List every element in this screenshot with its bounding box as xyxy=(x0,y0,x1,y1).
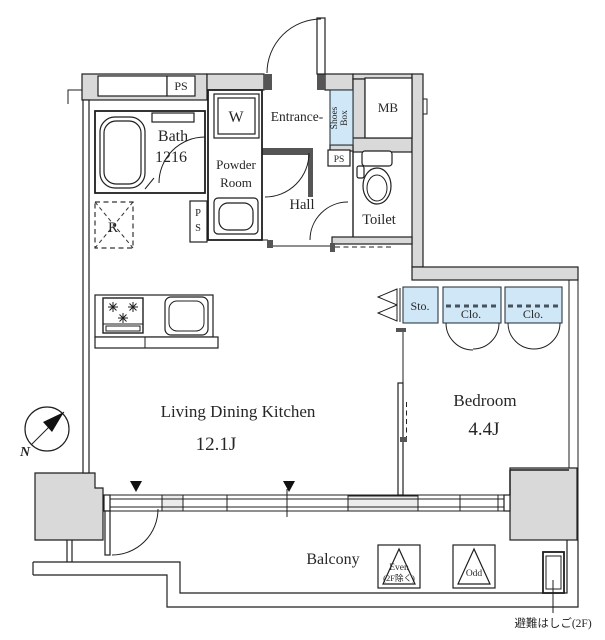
entrance-inner-door-arc xyxy=(265,153,309,197)
label-powder-2: Room xyxy=(220,175,252,190)
label-washer: W xyxy=(228,109,244,126)
door-jamb-right xyxy=(317,74,325,90)
exterior-stub-top-left xyxy=(68,90,82,104)
wall-toilet-bottom xyxy=(332,237,412,244)
label-bath-size: 1216 xyxy=(155,149,187,166)
window-end-cap-right xyxy=(504,495,510,511)
window-end-cap-left xyxy=(104,495,110,511)
bath-counter xyxy=(152,113,194,122)
opening-marker-1 xyxy=(130,481,142,492)
opening-marker-2 xyxy=(283,481,295,492)
floor-plan-page: N PS Bath 1216 W Powder Room P S Entranc… xyxy=(0,0,605,640)
wall-mb-bottom xyxy=(353,138,412,152)
label-bedroom: Bedroom xyxy=(453,391,516,410)
label-even: Even xyxy=(389,563,409,573)
label-ps-top: PS xyxy=(174,79,187,93)
front-door-arc xyxy=(267,19,321,73)
label-ps-v1: P xyxy=(195,208,201,219)
closet-2-doors xyxy=(508,323,560,349)
bathtub-inner xyxy=(104,121,141,184)
window-mullions xyxy=(162,489,498,517)
label-closet-1: Clo. xyxy=(461,307,481,321)
label-hall: Hall xyxy=(290,197,315,213)
label-shoes-2: Box xyxy=(340,110,350,126)
label-even-note: (2F除く) xyxy=(383,573,415,583)
kitchen-lower-cabinet xyxy=(95,337,218,348)
balcony-door-leaf xyxy=(105,511,110,555)
ldk-bedroom-partition xyxy=(396,328,407,495)
label-bedroom-area: 4.4J xyxy=(468,419,499,440)
wall-top-powder xyxy=(207,74,264,90)
toilet-flush-handle xyxy=(357,166,364,178)
pillar-left xyxy=(35,473,103,540)
wall-mb-left xyxy=(353,79,365,145)
label-storage: Sto. xyxy=(410,299,429,313)
label-entrance: Entrance- xyxy=(271,109,324,124)
label-odd: Odd xyxy=(466,569,483,579)
wall-left-double-line xyxy=(83,100,89,473)
entrance-step xyxy=(262,148,313,155)
label-ldk-area: 12.1J xyxy=(196,434,237,455)
toilet-door-arc xyxy=(310,202,348,240)
window-frame-overlap-1 xyxy=(162,495,183,511)
wall-right-upper xyxy=(412,74,423,267)
label-ldk: Living Dining Kitchen xyxy=(161,402,316,421)
bath-room xyxy=(95,111,205,193)
top-wall-cabinet xyxy=(98,76,167,96)
label-bath: Bath xyxy=(158,128,188,145)
compass-needle xyxy=(43,412,64,432)
label-ps-v2: S xyxy=(195,223,201,234)
wall-bedroom-top xyxy=(412,267,578,280)
label-mb: MB xyxy=(378,100,399,115)
label-closet-2: Clo. xyxy=(523,307,543,321)
window-band xyxy=(104,481,510,555)
balcony-door-arc xyxy=(112,509,158,555)
toilet-tank xyxy=(362,151,392,166)
vanity-sink-bowl xyxy=(219,203,253,230)
storage-bifold-door xyxy=(378,288,400,322)
window-frame-overlap-2 xyxy=(348,496,418,511)
label-toilet: Toilet xyxy=(362,212,396,228)
closet-1-doors xyxy=(446,323,499,350)
kitchen xyxy=(95,295,218,348)
floor-plan-drawing: N PS Bath 1216 W Powder Room P S Entranc… xyxy=(0,0,605,640)
compass-north-label: N xyxy=(19,445,31,460)
wall-tick-hall xyxy=(267,240,273,248)
label-shoes-1: Shoes xyxy=(330,106,340,129)
label-ladder-note: 避難はしご(2F) xyxy=(514,616,591,630)
pillar-right xyxy=(510,468,577,540)
label-fridge: R xyxy=(108,220,118,236)
label-balcony: Balcony xyxy=(306,551,359,568)
wall-tick-toilet xyxy=(330,243,335,252)
front-door-leaf xyxy=(317,18,325,74)
label-ps-small: PS xyxy=(334,155,345,165)
joint-mark-right-wall xyxy=(423,99,427,114)
wall-top-entry-right xyxy=(325,74,353,90)
door-jamb-left xyxy=(264,74,272,90)
label-powder-1: Powder xyxy=(216,157,256,172)
compass-icon: N xyxy=(19,407,69,460)
